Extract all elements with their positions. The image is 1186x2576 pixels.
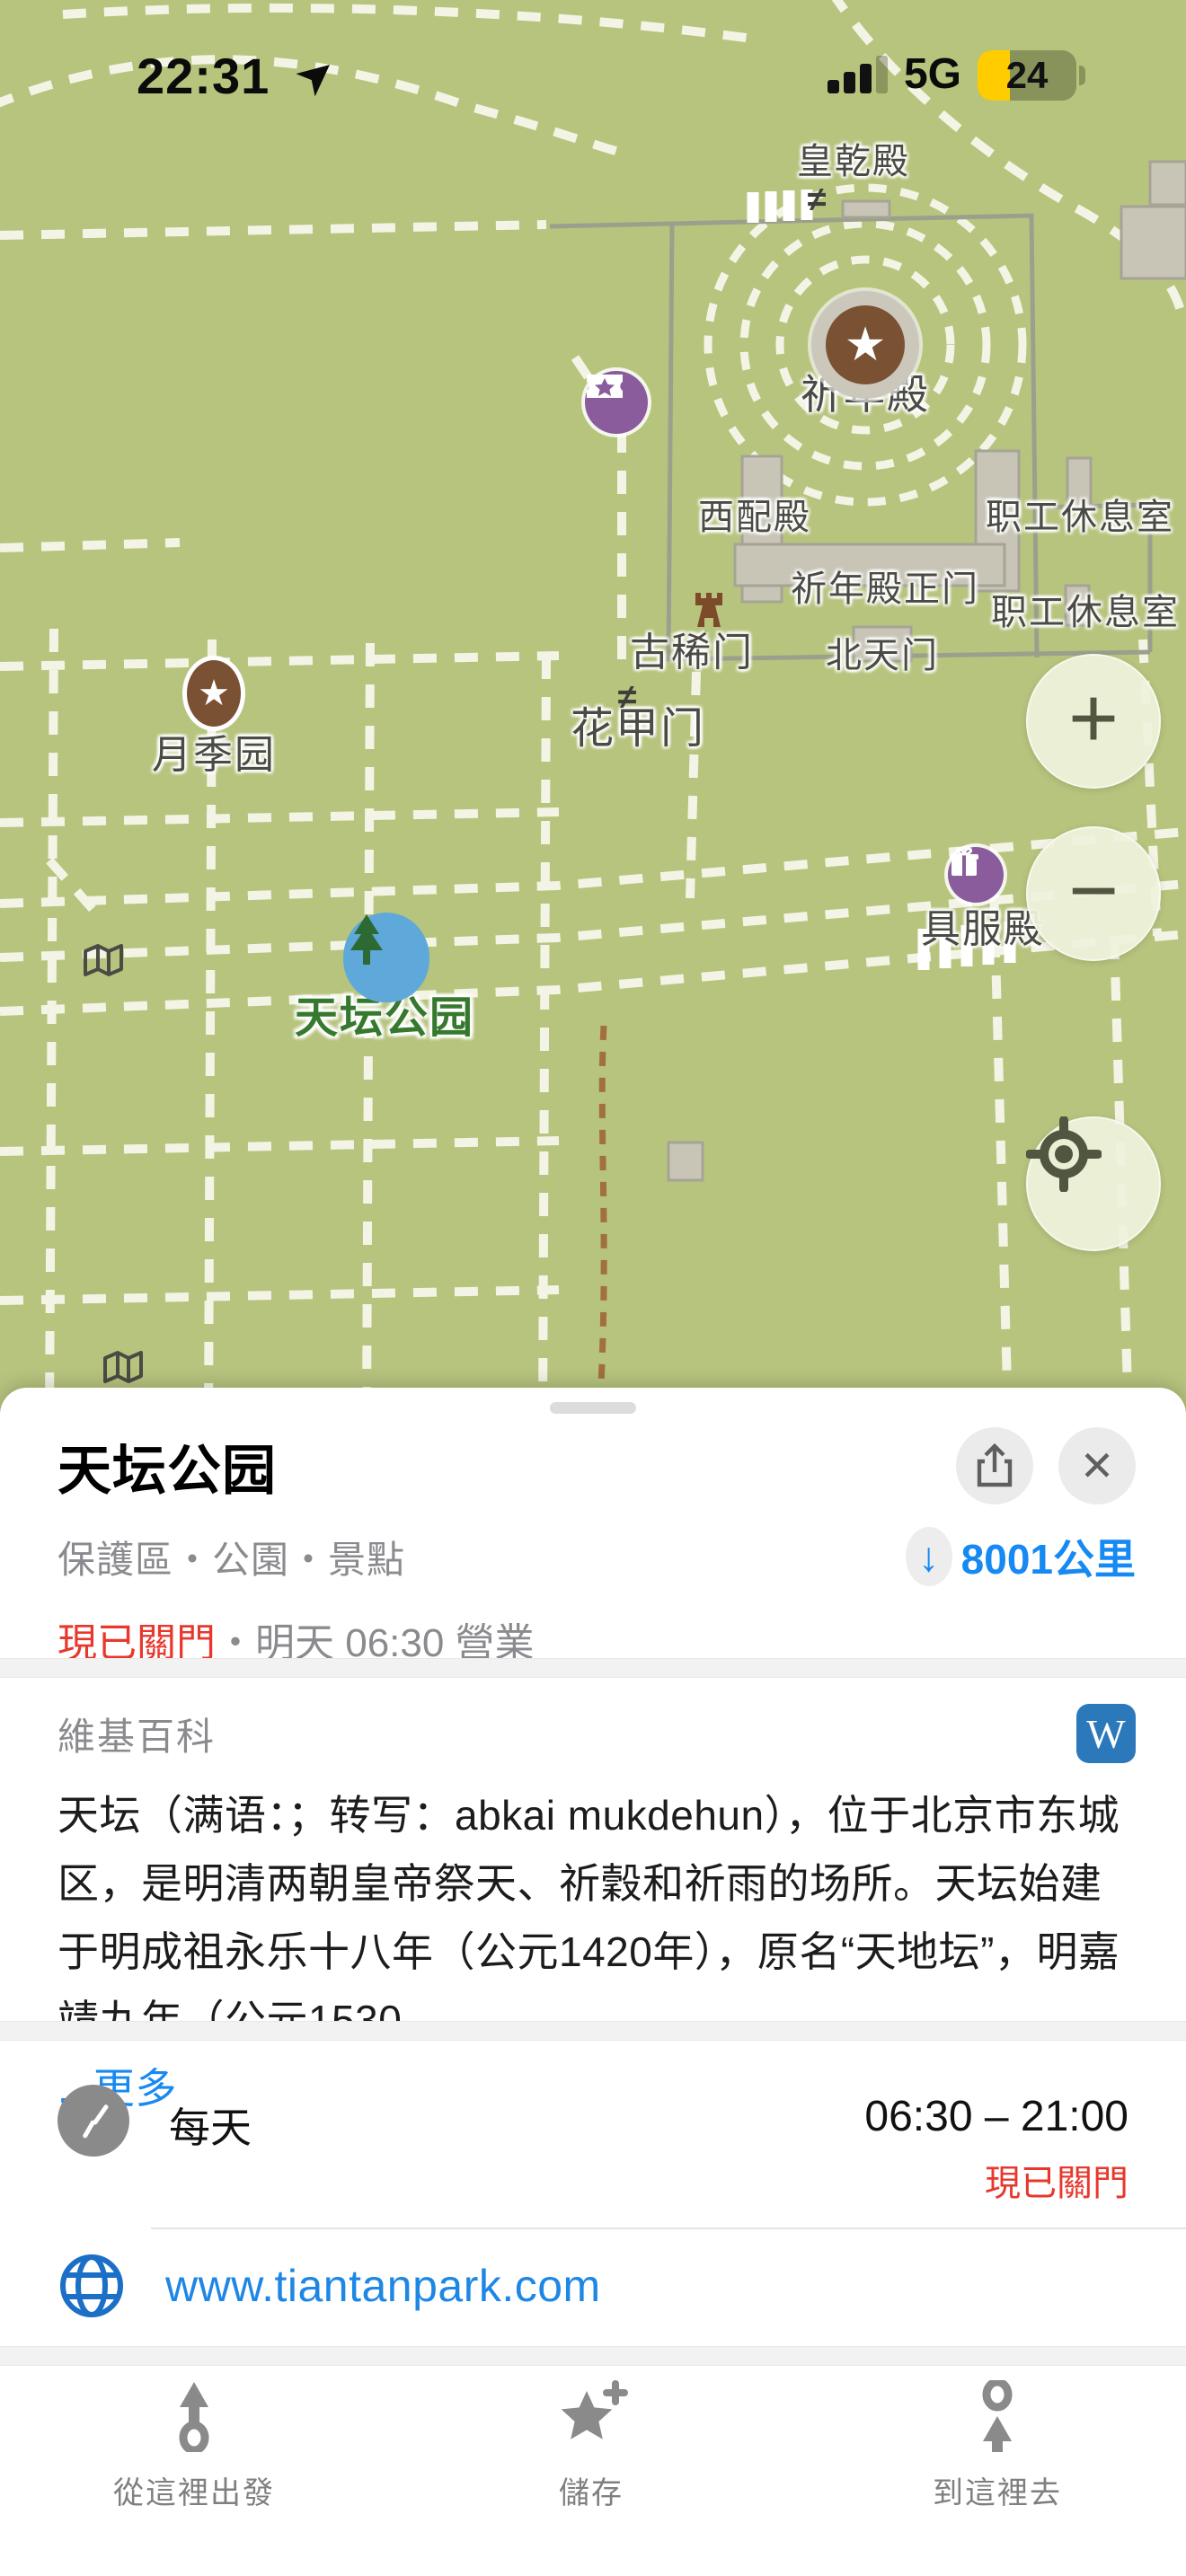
battery-icon: 24 — [978, 50, 1076, 101]
map-label: 皇乾殿 — [797, 132, 910, 184]
locate-me-button[interactable] — [1026, 1116, 1161, 1251]
map-label: 花甲门 — [571, 693, 705, 755]
map-canvas[interactable]: 皇乾殿祈年殿西配殿职工休息室祈年殿正门职工休息室古稀门北天门花甲门月季园具服殿天… — [0, 0, 1186, 1419]
down-arrow-icon: ↓ — [906, 1527, 952, 1586]
website-row[interactable]: www.tiantanpark.com — [58, 2243, 1128, 2329]
gate-icon: ≠ — [808, 181, 827, 220]
wikipedia-extract: 天坛（满语：；转写：abkai mukdehun），位于北京市东城区，是明清两朝… — [58, 1781, 1140, 2122]
share-icon — [976, 1443, 1013, 1488]
place-title: 天坛公园 — [58, 1427, 277, 1505]
poi-ticket-office[interactable] — [585, 371, 648, 434]
clock-icon — [58, 2085, 129, 2157]
wikipedia-icon: W — [1076, 1704, 1136, 1763]
map-label: 祈年殿正门 — [791, 560, 979, 612]
goto-icon — [963, 2380, 1031, 2452]
location-arrow-icon: ➤ — [284, 42, 349, 109]
opening-hours-row: 每天 06:30 – 21:00 現已關門 — [58, 2079, 1128, 2206]
sheet-drag-handle[interactable] — [550, 1402, 636, 1414]
minus-icon: − — [1068, 848, 1119, 934]
toolbar-label: 到這裡去 — [933, 2468, 1062, 2512]
toolbar-label: 從這裡出發 — [113, 2468, 275, 2512]
map-label: 职工休息室 — [986, 488, 1174, 540]
share-button[interactable] — [956, 1427, 1033, 1504]
crosshair-icon — [1026, 1116, 1102, 1192]
globe-icon — [58, 2252, 126, 2320]
clock-time: 22:31 — [137, 47, 270, 105]
map-label: 月季园 — [152, 722, 276, 780]
network-type: 5G — [904, 49, 961, 101]
map-label: 北天门 — [826, 626, 939, 678]
star-icon: ★ — [198, 675, 230, 711]
zoom-in-button[interactable]: + — [1026, 654, 1161, 789]
battery-percent: 24 — [978, 50, 1076, 101]
save-button[interactable]: 儲存 — [443, 2380, 739, 2512]
section-divider — [0, 2021, 1186, 2041]
close-icon: ✕ — [1080, 1442, 1115, 1490]
poi-rose-garden[interactable]: ★ — [187, 660, 241, 727]
map-label: 西配殿 — [698, 488, 811, 540]
hours-status: 現已關門 — [864, 2154, 1128, 2206]
directions-to-here-button[interactable]: 到這裡去 — [849, 2380, 1146, 2512]
zoom-out-button[interactable]: − — [1026, 826, 1161, 961]
signal-strength-icon — [828, 56, 888, 101]
wikipedia-section-title: 維基百科 — [58, 1707, 216, 1761]
wikipedia-text: 天坛（满语：；转写：abkai mukdehun），位于北京市东城区，是明清两朝… — [58, 1792, 1120, 2043]
hours-days: 每天 — [169, 2095, 252, 2155]
map-label: 职工休息室 — [991, 583, 1180, 635]
place-category: 保護區・公園・景點 — [58, 1530, 405, 1584]
poi-park-pin[interactable] — [343, 913, 429, 1002]
actions-toolbar: 從這裡出發 儲存 到這裡去 — [0, 2366, 1186, 2576]
website-link[interactable]: www.tiantanpark.com — [165, 2260, 601, 2312]
section-divider — [0, 2346, 1186, 2366]
gift-icon — [948, 847, 980, 879]
directions-from-here-button[interactable]: 從這裡出發 — [46, 2380, 342, 2512]
tree-icon — [343, 913, 390, 968]
gate-icon: ≠ — [618, 679, 637, 718]
distance-value: 8001公里 — [961, 1527, 1136, 1586]
close-button[interactable]: ✕ — [1058, 1427, 1136, 1504]
poi-gift-shop[interactable] — [948, 847, 1004, 903]
save-star-icon — [554, 2380, 628, 2452]
distance-indicator: ↓ 8001公里 — [906, 1527, 1136, 1586]
depart-icon — [160, 2380, 228, 2452]
section-divider — [0, 1658, 1186, 1678]
screen: { "status_bar": { "time": "22:31", "netw… — [0, 0, 1186, 2576]
poi-qinian-hall[interactable]: ★ — [826, 305, 905, 384]
status-bar: 22:31 ➤ 5G 24 — [0, 47, 1186, 110]
ticket-icon — [585, 371, 624, 401]
plus-icon: + — [1068, 675, 1119, 762]
star-icon: ★ — [845, 322, 887, 368]
hours-time: 06:30 – 21:00 — [864, 2092, 1128, 2141]
inset-divider — [151, 2228, 1186, 2229]
toolbar-label: 儲存 — [559, 2468, 624, 2512]
